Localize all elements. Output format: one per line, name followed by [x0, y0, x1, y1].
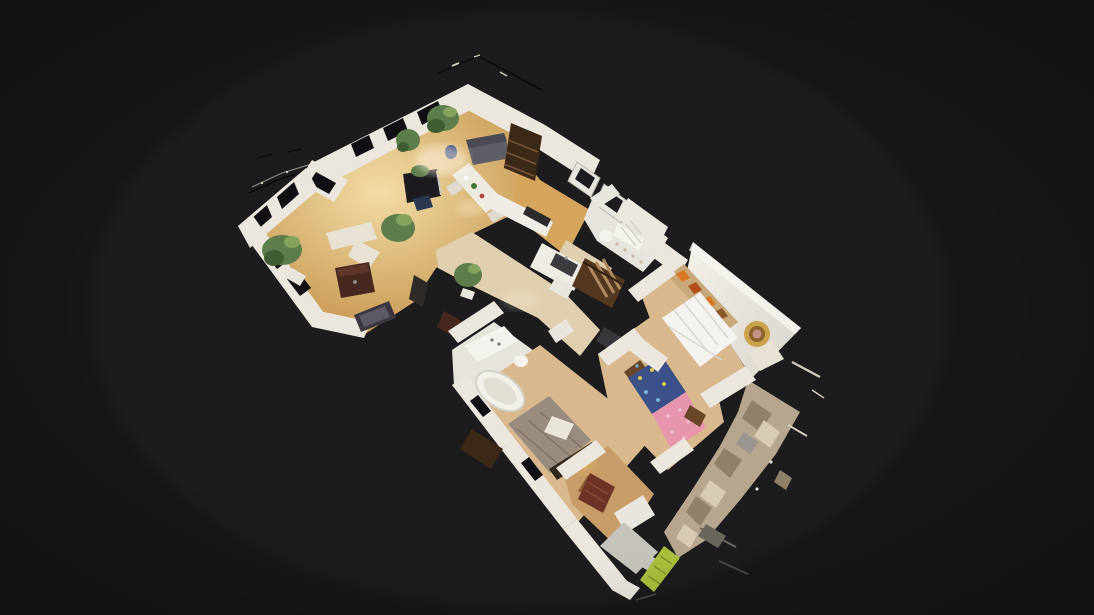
dollhouse-model[interactable] [0, 0, 1094, 615]
vignette-overlay [0, 0, 1094, 615]
matterport-viewer[interactable] [0, 0, 1094, 615]
